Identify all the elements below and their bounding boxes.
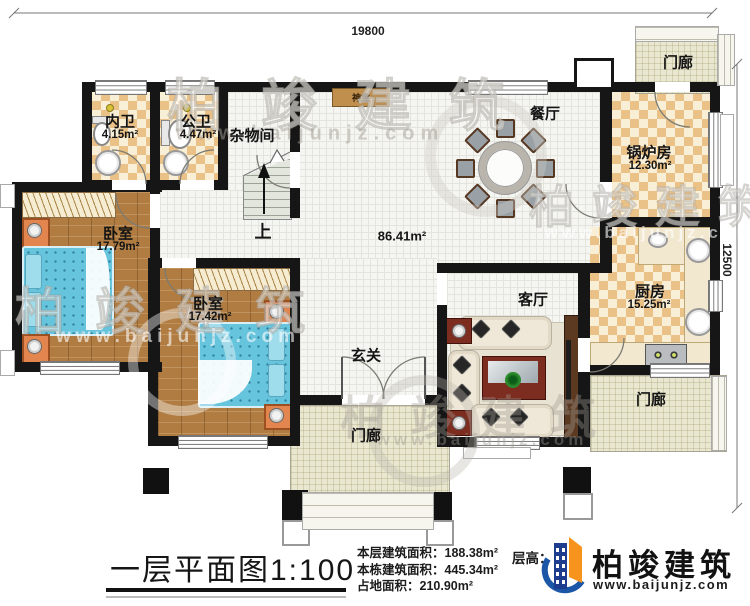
plan-title: 一层平面图1:100 <box>110 545 355 589</box>
shrine-label: 神龛 <box>352 91 370 104</box>
label-stairs-up: 上 <box>255 218 272 243</box>
wall-entry-bottom-left <box>290 395 342 405</box>
door-gap-bedroom2 <box>162 258 196 268</box>
window-bath-public <box>165 80 215 95</box>
sofa-bottom <box>470 404 554 438</box>
dining-chair-w <box>456 159 475 178</box>
label-porch-bottom: 门廊 <box>351 425 381 446</box>
stat-row-building-area: 本栋建筑面积：445.34m² <box>357 562 498 579</box>
window-bath-inner <box>95 80 147 95</box>
side-table-top-lamp <box>452 324 466 338</box>
label-hall-area: 86.41m² <box>378 229 426 244</box>
porch-right-column-base <box>563 493 593 520</box>
wall-kitchen-jog <box>578 263 612 273</box>
label-entry: 玄关 <box>351 345 381 366</box>
wall-boiler-left-upper <box>600 82 612 182</box>
window-kitchen-right <box>708 280 723 312</box>
bedroom1-pillow-2 <box>25 292 42 327</box>
label-dining: 餐厅 <box>530 103 560 124</box>
porch-top-steps <box>635 26 719 42</box>
stat-label: 占地面积： <box>357 579 420 593</box>
side-table-bottom-lamp <box>452 416 466 430</box>
dining-table <box>479 142 531 194</box>
logo-site-text: www.baijunjz.com <box>593 577 729 592</box>
bedroom1-blanket <box>86 248 110 330</box>
stat-row-footprint-area: 占地面积：210.90m² <box>357 578 498 595</box>
dining-chair-e <box>536 159 555 178</box>
wall-bath-left <box>82 82 92 190</box>
stat-row-floor-area: 本层建筑面积：188.38m² <box>357 545 498 562</box>
door-gap-entry <box>342 395 425 405</box>
dimension-top-label: 19800 <box>351 24 384 38</box>
window-bedroom2 <box>178 435 268 449</box>
entry-floor <box>300 258 437 395</box>
door-gap-kitchen <box>578 338 590 372</box>
label-bedroom1-area: 17.79m² <box>97 241 140 253</box>
title-underline-thick <box>106 588 346 592</box>
bath-public-sink <box>163 150 189 176</box>
wall-boiler-kitchen <box>600 217 720 227</box>
sill-right-boiler <box>720 114 734 186</box>
wall-kitchen-left-upper <box>578 273 590 338</box>
wall-bedroom2-right <box>290 258 300 446</box>
floor-plan: 神龛 <box>0 0 750 606</box>
label-boiler-area: 12.30m² <box>629 160 672 172</box>
shrine-niche: 神龛 <box>332 88 390 107</box>
door-gap-bath-public <box>180 180 214 190</box>
bedroom1-wardrobe <box>22 192 116 218</box>
porch-right-steps <box>711 376 727 451</box>
porch-top-side-steps <box>717 34 735 86</box>
porch-bottom-steps <box>302 492 434 530</box>
label-porch-right: 门廊 <box>636 389 666 410</box>
bedroom1-lamp-bottom <box>27 339 42 354</box>
dimension-right-label: 12500 <box>720 243 734 276</box>
stat-label: 本栋建筑面积： <box>357 563 445 577</box>
area-stats: 本层建筑面积：188.38m² 本栋建筑面积：445.34m² 占地面积：210… <box>357 545 498 595</box>
tv-screen <box>566 340 571 400</box>
porch-right-column <box>563 467 591 493</box>
floor-height-label: 层高： <box>512 547 553 567</box>
label-bath-public-area: 4.47m² <box>180 129 216 141</box>
porch-right-floor <box>590 375 727 452</box>
dimension-tick-top-right <box>707 8 717 18</box>
bedroom2-pillow-2 <box>268 364 285 397</box>
wall-bath-divider-1 <box>150 82 160 190</box>
door-gap-storage <box>290 152 300 188</box>
dining-chair-n <box>496 119 515 138</box>
door-gap-bath-inner <box>112 180 146 190</box>
dimension-tick-right-bottom <box>732 503 742 513</box>
door-gap-bedroom1 <box>150 194 160 228</box>
bedroom2-pillow-1 <box>268 328 285 361</box>
title-underline-thin <box>106 596 346 598</box>
wall-storage-right <box>290 82 300 218</box>
door-gap-boiler <box>600 182 612 218</box>
dining-chair-s <box>496 199 515 218</box>
bedroom2-lamp-bottom <box>269 408 284 423</box>
stat-value: 210.90m² <box>420 579 474 593</box>
bedroom2-lamp-top <box>269 304 284 319</box>
wall-kitchen-left-lower <box>578 372 590 447</box>
label-kitchen-area: 15.25m² <box>628 299 671 311</box>
sill-left-1 <box>0 184 15 208</box>
label-living: 客厅 <box>518 289 548 310</box>
wall-bedroom2-left <box>148 258 158 446</box>
stat-label: 本层建筑面积： <box>357 546 445 560</box>
wall-bedroom1-left <box>12 182 22 372</box>
coffee-table-plant <box>505 372 521 388</box>
porch-column-left-free <box>143 468 169 494</box>
kitchen-sink-top <box>686 238 711 263</box>
wall-bath-divider-2 <box>218 82 228 190</box>
logo-building-blue <box>554 543 567 589</box>
label-porch-top: 门廊 <box>663 52 693 73</box>
bedroom1-pillow-1 <box>25 254 42 289</box>
window-dining <box>468 80 548 95</box>
label-storage: 杂物间 <box>229 125 274 146</box>
bath-inner-sink <box>95 150 121 176</box>
logo-icon <box>540 535 590 601</box>
wall-living-top <box>437 263 590 273</box>
kitchen-sink-right <box>685 308 713 336</box>
window-kitchen-bottom <box>650 363 710 378</box>
stat-value: 188.38m² <box>445 546 499 560</box>
bedroom1-lamp-top <box>27 223 42 238</box>
chimney <box>574 58 614 90</box>
sill-left-2 <box>0 350 15 376</box>
label-bedroom2-area: 17.42m² <box>189 311 232 323</box>
porch-bottom-floor <box>290 405 450 494</box>
window-bedroom1 <box>40 361 120 375</box>
kitchen-sink-small <box>648 232 668 248</box>
logo-building-orange <box>569 537 582 583</box>
dimension-tick-top-left <box>9 8 19 18</box>
bedroom2-wardrobe <box>193 268 292 291</box>
door-gap-boiler-porch <box>655 82 690 92</box>
label-bath-inner-area: 4.15m² <box>102 129 138 141</box>
sill-living-window <box>463 447 531 459</box>
wall-living-left <box>437 305 447 447</box>
stat-value: 445.34m² <box>445 563 499 577</box>
